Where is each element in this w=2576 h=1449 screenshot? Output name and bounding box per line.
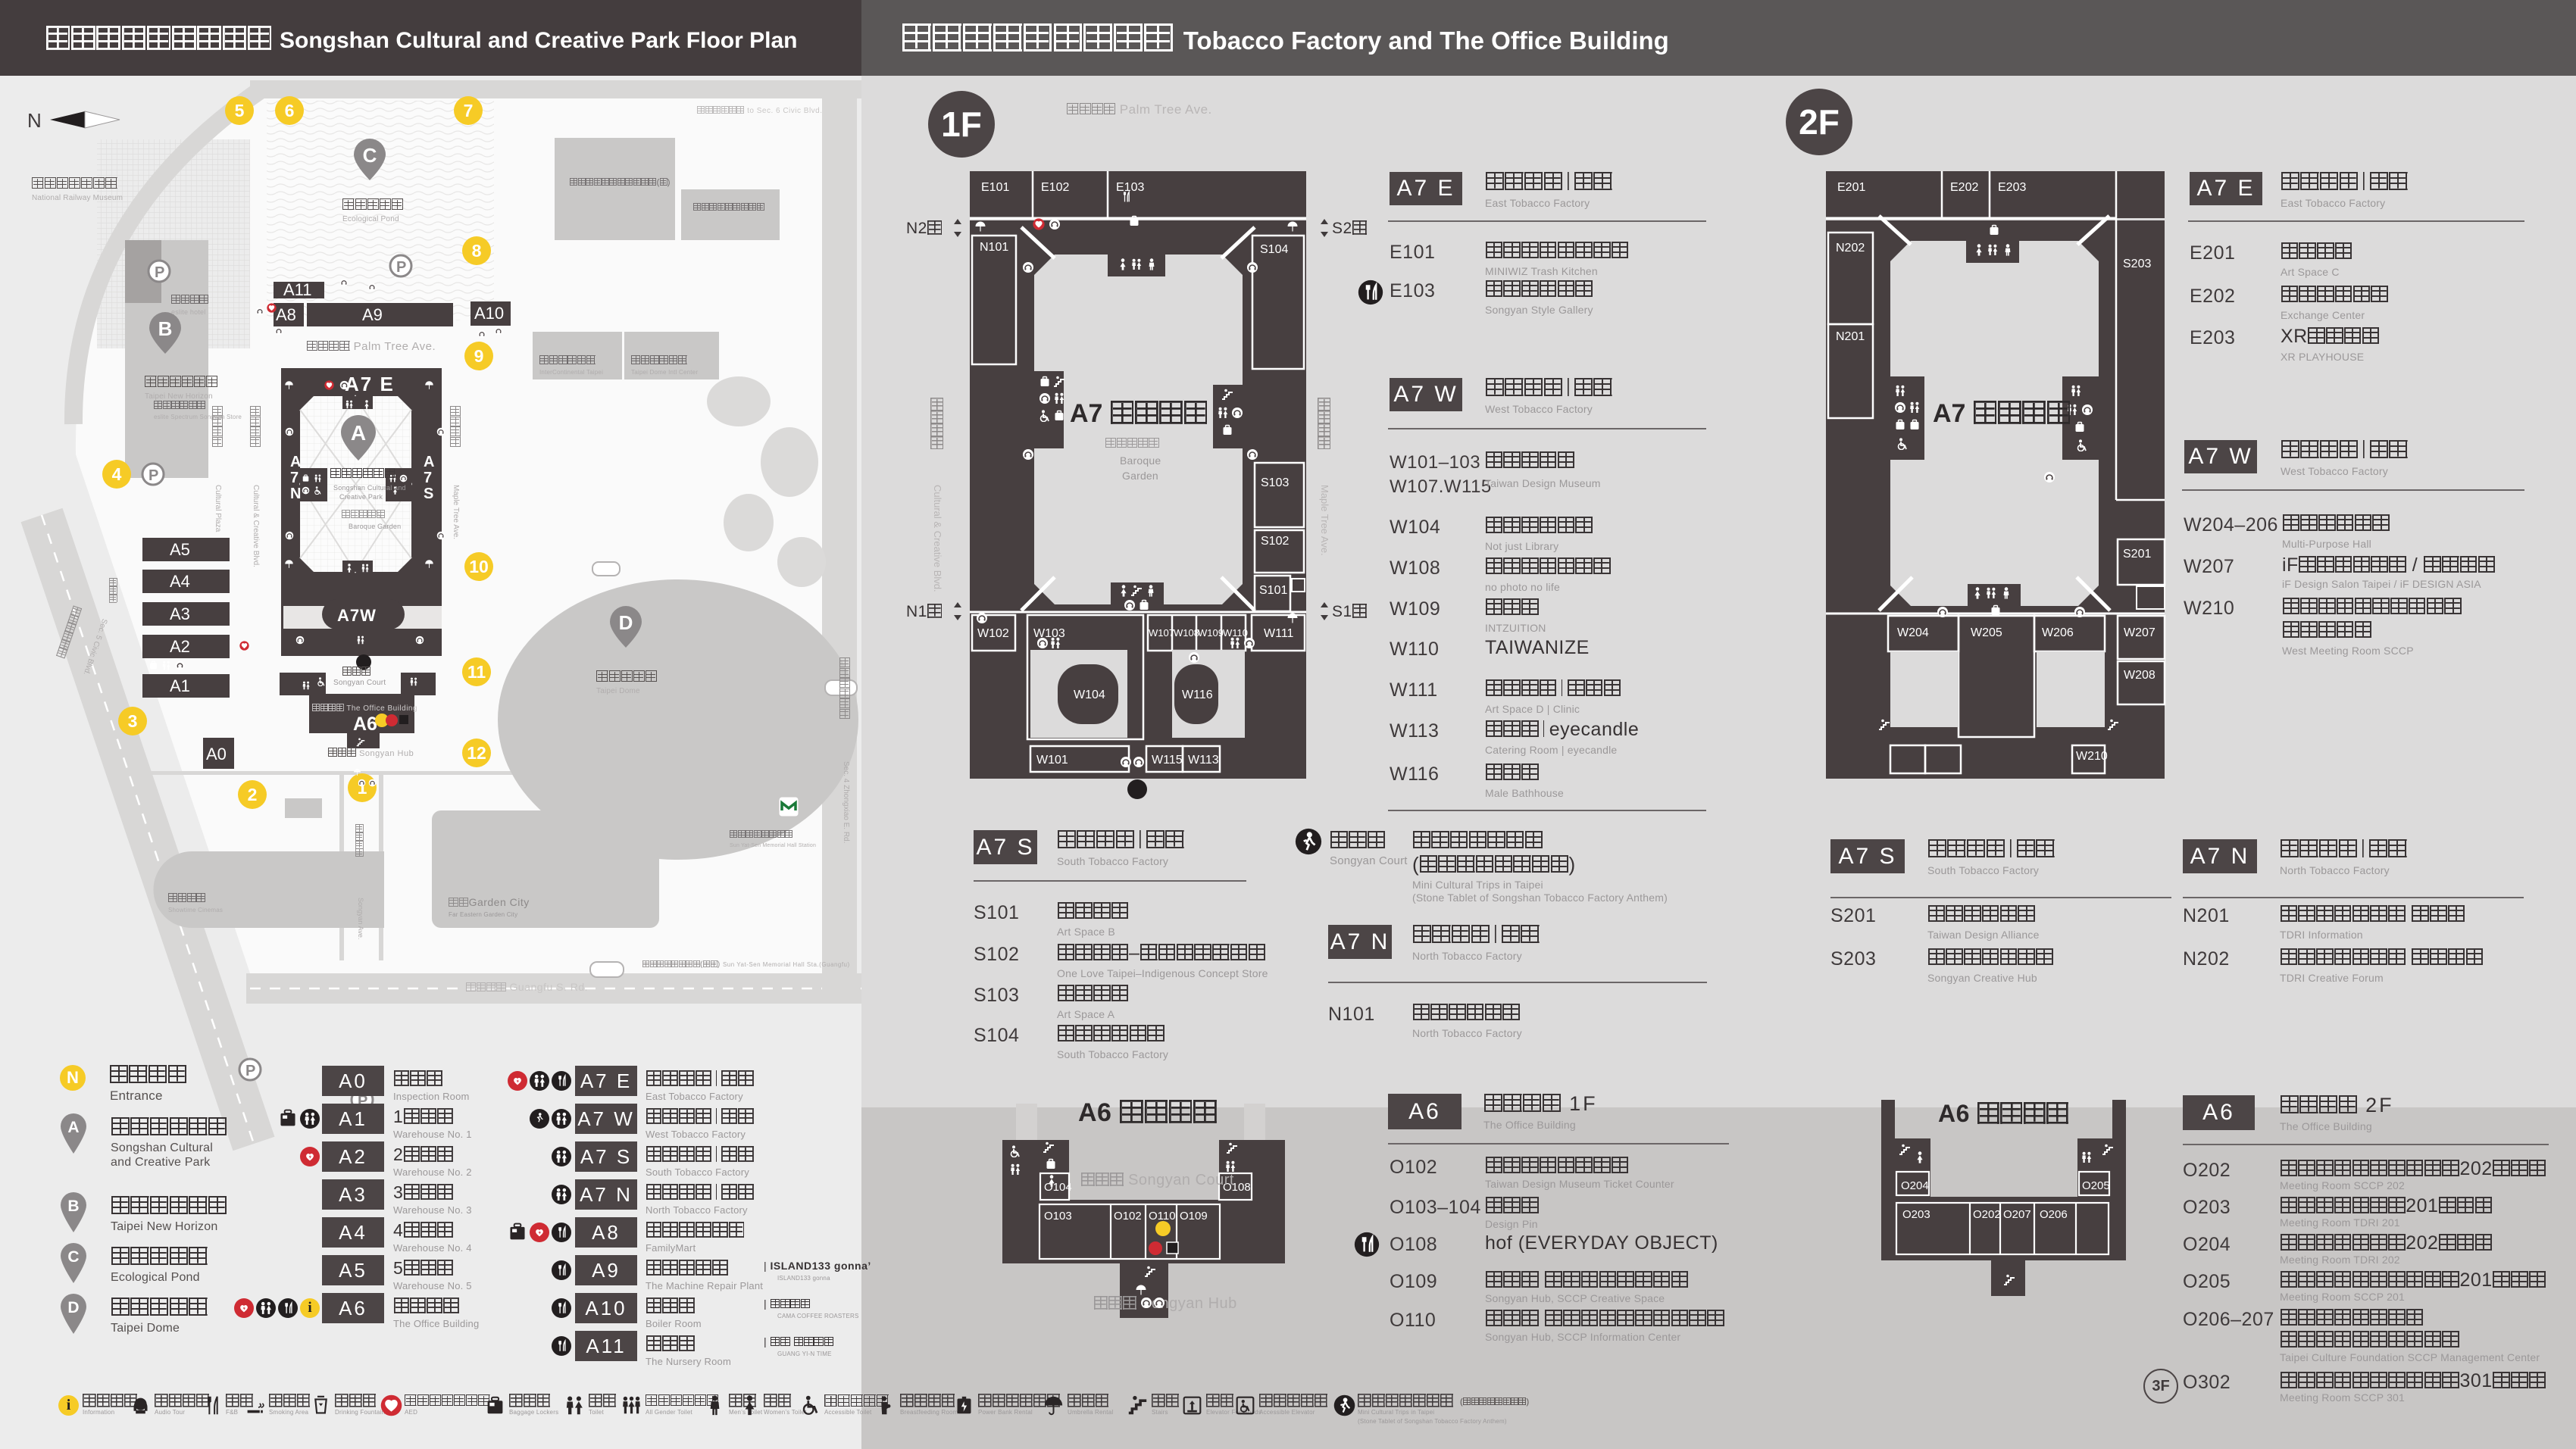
svg-text:P: P <box>396 259 406 276</box>
svg-text:7: 7 <box>424 470 432 486</box>
svg-text:N: N <box>27 109 42 132</box>
svg-text:W208: W208 <box>2124 669 2156 682</box>
svg-text:O109: O109 <box>1180 1210 1208 1223</box>
svg-text:S: S <box>424 486 433 502</box>
svg-text:A10: A10 <box>474 304 504 323</box>
svg-text:O207: O207 <box>2003 1208 2031 1221</box>
svg-text:N201: N201 <box>1836 330 1865 343</box>
svg-text:N202: N202 <box>1836 242 1865 255</box>
svg-text:O102: O102 <box>1114 1210 1142 1223</box>
svg-text:A7 E: A7 E <box>345 373 395 395</box>
svg-text:W206: W206 <box>2042 626 2074 639</box>
svg-text:E202: E202 <box>1950 181 1978 194</box>
svg-text:P: P <box>155 264 164 281</box>
svg-text:P: P <box>148 467 158 484</box>
svg-text:W107: W107 <box>1149 627 1174 639</box>
svg-text:9: 9 <box>474 346 484 366</box>
svg-text:W104: W104 <box>1074 689 1105 701</box>
svg-text:W108: W108 <box>1174 627 1199 639</box>
svg-text:A: A <box>351 421 366 445</box>
svg-text:A1: A1 <box>170 676 190 695</box>
svg-text:E102: E102 <box>1041 181 1069 194</box>
svg-text:12: 12 <box>467 743 486 763</box>
svg-text:A0: A0 <box>206 745 227 764</box>
svg-text:W205: W205 <box>1971 626 2002 639</box>
svg-text:A3: A3 <box>170 604 190 623</box>
svg-text:S103: S103 <box>1261 476 1289 489</box>
svg-text:A4: A4 <box>170 572 190 591</box>
svg-text:W207: W207 <box>2124 626 2156 639</box>
svg-text:W102: W102 <box>977 627 1009 640</box>
svg-text:W101: W101 <box>1036 754 1068 767</box>
svg-text:C: C <box>67 1248 79 1266</box>
svg-text:S104: S104 <box>1260 243 1288 256</box>
svg-text:O103: O103 <box>1044 1210 1072 1223</box>
svg-text:B: B <box>158 317 173 340</box>
svg-text:5: 5 <box>235 101 245 120</box>
svg-text:W116: W116 <box>1182 689 1213 701</box>
svg-text:S101: S101 <box>1259 584 1287 597</box>
svg-text:D: D <box>619 611 633 634</box>
svg-text:S102: S102 <box>1261 535 1289 548</box>
svg-text:E203: E203 <box>1998 181 2026 194</box>
svg-text:W210: W210 <box>2076 750 2108 763</box>
svg-text:A8: A8 <box>276 305 296 324</box>
svg-text:C: C <box>363 144 377 167</box>
svg-text:10: 10 <box>469 557 489 576</box>
svg-text:4: 4 <box>112 464 122 484</box>
svg-text:6: 6 <box>285 101 295 120</box>
svg-text:O203: O203 <box>1902 1208 1930 1221</box>
svg-text:W113: W113 <box>1188 754 1219 767</box>
svg-text:8: 8 <box>472 241 482 261</box>
svg-text:O204: O204 <box>1901 1179 1929 1192</box>
svg-text:W111: W111 <box>1264 627 1294 640</box>
svg-text:A11: A11 <box>283 280 312 299</box>
svg-text:W115: W115 <box>1152 754 1183 767</box>
svg-text:N: N <box>290 486 301 502</box>
svg-text:3: 3 <box>128 711 138 731</box>
svg-text:O206: O206 <box>2040 1208 2068 1221</box>
svg-text:N101: N101 <box>980 241 1008 254</box>
svg-text:A5: A5 <box>170 540 190 559</box>
svg-text:O202: O202 <box>1973 1208 2001 1221</box>
svg-text:D: D <box>67 1299 79 1316</box>
svg-text:A6: A6 <box>353 714 377 735</box>
svg-text:A9: A9 <box>362 305 383 324</box>
svg-text:W109: W109 <box>1198 627 1224 639</box>
svg-text:7: 7 <box>464 101 474 120</box>
svg-text:O110: O110 <box>1149 1210 1176 1223</box>
svg-text:B: B <box>67 1198 79 1215</box>
svg-text:A2: A2 <box>170 637 190 656</box>
svg-text:S201: S201 <box>2123 548 2151 561</box>
svg-text:7: 7 <box>290 470 299 486</box>
svg-text:W204: W204 <box>1897 626 1929 639</box>
svg-text:11: 11 <box>467 662 486 682</box>
svg-text:E201: E201 <box>1837 181 1865 194</box>
svg-text:P: P <box>245 1063 255 1079</box>
svg-text:A: A <box>67 1119 79 1136</box>
svg-text:A: A <box>290 454 301 470</box>
svg-text:A: A <box>424 454 434 470</box>
svg-text:E101: E101 <box>981 181 1009 194</box>
svg-text:S203: S203 <box>2123 258 2151 270</box>
svg-text:A7W: A7W <box>337 606 377 625</box>
svg-text:O205: O205 <box>2082 1179 2110 1192</box>
svg-text:2: 2 <box>248 785 258 804</box>
